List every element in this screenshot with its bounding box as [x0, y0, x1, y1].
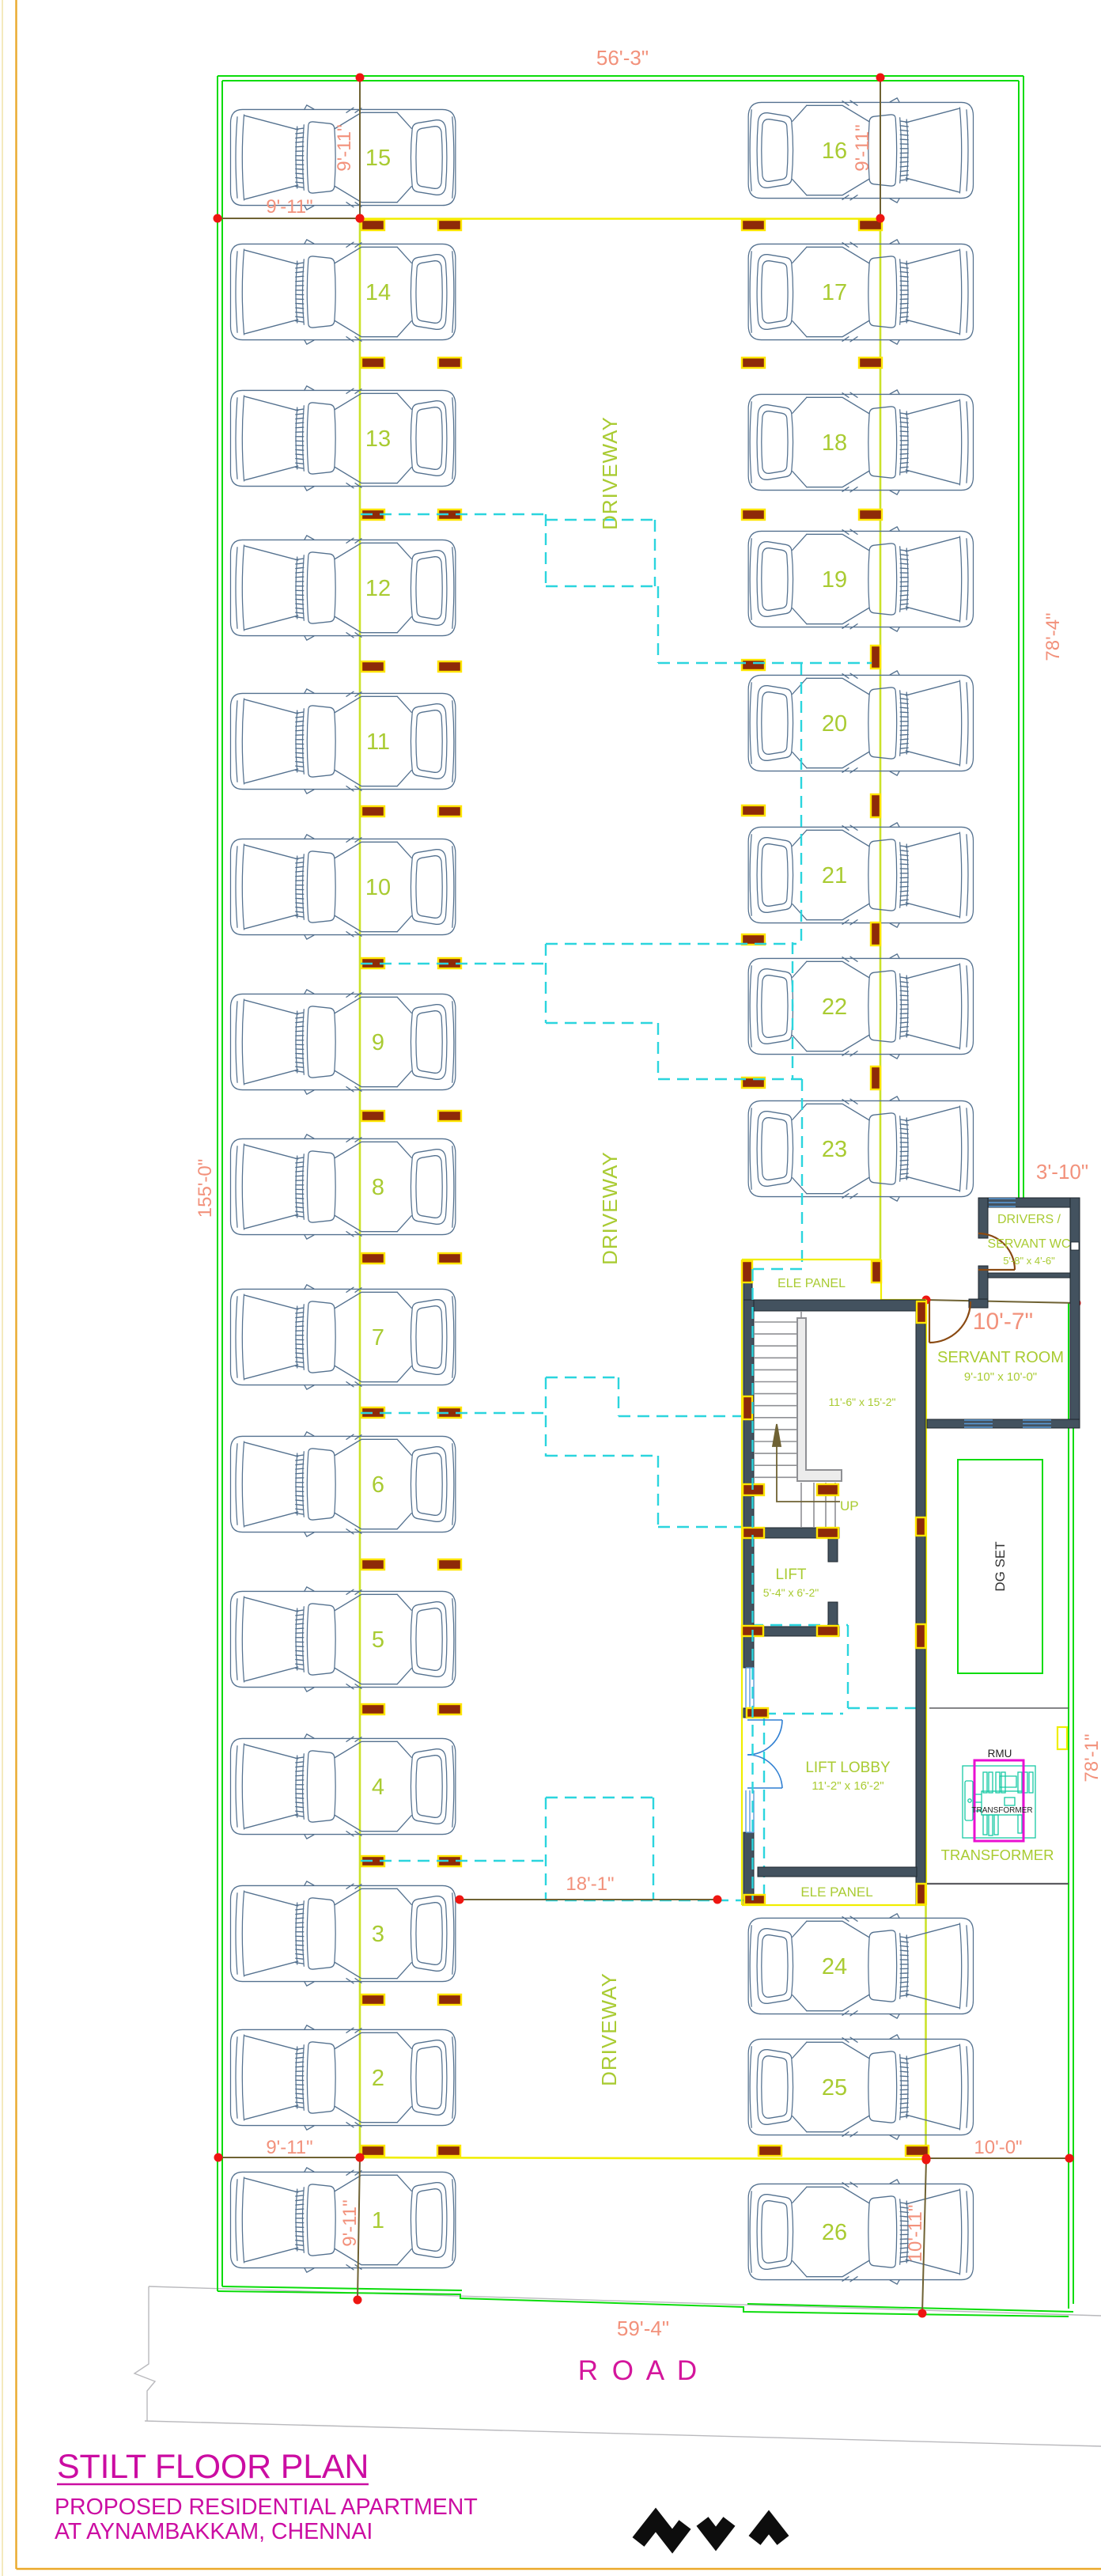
svg-text:3'-10": 3'-10" [1036, 1160, 1088, 1184]
svg-text:STILT FLOOR PLAN: STILT FLOOR PLAN [57, 2448, 369, 2486]
svg-text:8: 8 [372, 1175, 384, 1200]
svg-text:26: 26 [822, 2220, 847, 2245]
svg-text:78'-4": 78'-4" [1042, 612, 1064, 661]
svg-text:14: 14 [365, 280, 391, 305]
svg-text:TRANSFORMER: TRANSFORMER [971, 1806, 1032, 1815]
svg-text:18'-1": 18'-1" [566, 1873, 614, 1895]
svg-text:TRANSFORMER: TRANSFORMER [941, 1847, 1054, 1863]
svg-text:9'-11": 9'-11" [334, 124, 355, 171]
svg-text:5'-4" x 6'-2": 5'-4" x 6'-2" [763, 1586, 819, 1599]
svg-text:25: 25 [822, 2075, 847, 2101]
svg-text:22: 22 [822, 994, 847, 1020]
svg-text:21: 21 [822, 863, 847, 888]
svg-text:DG SET: DG SET [993, 1541, 1008, 1591]
svg-text:SERVANT WC: SERVANT WC [988, 1237, 1071, 1251]
svg-text:11'-6" x 15'-2": 11'-6" x 15'-2" [828, 1396, 895, 1408]
svg-text:1: 1 [372, 2208, 384, 2233]
svg-text:9'-10" x 10'-0": 9'-10" x 10'-0" [964, 1370, 1037, 1384]
svg-text:5: 5 [372, 1627, 384, 1653]
svg-text:17: 17 [822, 280, 847, 305]
svg-text:9'-11": 9'-11" [266, 196, 312, 218]
svg-text:ELE PANEL: ELE PANEL [800, 1885, 872, 1900]
svg-text:18: 18 [822, 430, 847, 456]
svg-text:16: 16 [822, 138, 847, 164]
svg-text:20: 20 [822, 711, 847, 737]
svg-text:10'-7": 10'-7" [973, 1309, 1033, 1335]
svg-text:9'-11": 9'-11" [852, 124, 873, 171]
svg-text:AT AYNAMBAKKAM, CHENNAI: AT AYNAMBAKKAM, CHENNAI [55, 2519, 373, 2544]
svg-text:5'-8" x 4'-6": 5'-8" x 4'-6" [1003, 1255, 1055, 1267]
svg-text:DRIVEWAY: DRIVEWAY [597, 1972, 621, 2086]
svg-text:6: 6 [372, 1472, 384, 1498]
svg-text:3: 3 [372, 1922, 384, 1947]
svg-text:LIFT: LIFT [775, 1566, 806, 1583]
svg-text:7: 7 [372, 1325, 384, 1351]
svg-text:DRIVEWAY: DRIVEWAY [598, 1151, 622, 1265]
svg-text:ELE PANEL: ELE PANEL [778, 1277, 846, 1290]
svg-text:13: 13 [365, 426, 391, 452]
svg-text:15: 15 [365, 146, 391, 171]
svg-text:9'-11": 9'-11" [266, 2137, 312, 2158]
svg-text:9'-11": 9'-11" [339, 2199, 361, 2246]
svg-text:SERVANT ROOM: SERVANT ROOM [937, 1349, 1064, 1366]
svg-text:PROPOSED RESIDENTIAL APARTMENT: PROPOSED RESIDENTIAL APARTMENT [55, 2495, 478, 2520]
svg-text:9: 9 [372, 1030, 384, 1055]
svg-text:DRIVEWAY: DRIVEWAY [598, 416, 622, 530]
svg-text:24: 24 [822, 1954, 847, 1979]
svg-text:11'-2" x 16'-2": 11'-2" x 16'-2" [812, 1779, 883, 1793]
svg-text:RMU: RMU [988, 1748, 1012, 1760]
svg-text:23: 23 [822, 1137, 847, 1162]
svg-text:UP: UP [840, 1498, 859, 1513]
svg-text:DRIVERS /: DRIVERS / [997, 1213, 1061, 1226]
svg-text:11: 11 [366, 729, 390, 755]
svg-text:19: 19 [822, 567, 847, 593]
svg-text:10'-0": 10'-0" [974, 2137, 1022, 2158]
svg-text:56'-3": 56'-3" [596, 46, 649, 70]
svg-text:4: 4 [372, 1775, 384, 1800]
svg-text:2: 2 [372, 2066, 384, 2091]
svg-text:155'-0": 155'-0" [195, 1159, 216, 1218]
svg-text:12: 12 [365, 576, 391, 601]
svg-text:R O A D: R O A D [578, 2355, 700, 2386]
svg-text:LIFT LOBBY: LIFT LOBBY [805, 1760, 891, 1776]
svg-text:59'-4": 59'-4" [617, 2317, 669, 2340]
svg-text:10: 10 [365, 875, 391, 900]
svg-text:10'-11": 10'-11" [905, 2205, 926, 2263]
svg-text:78'-1": 78'-1" [1081, 1733, 1101, 1782]
